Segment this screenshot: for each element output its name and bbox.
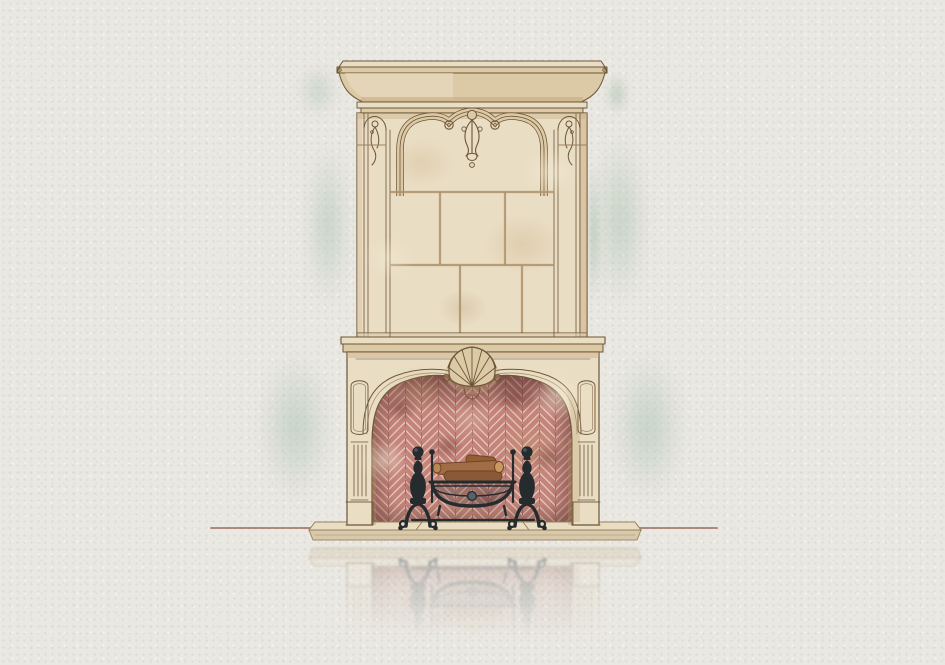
firewood-logs [433, 454, 504, 481]
fireplace-rendering [0, 0, 945, 665]
watercolor-scene [0, 0, 945, 665]
overmantel-trumeau [352, 108, 592, 342]
left-andiron [398, 446, 438, 530]
right-andiron [507, 446, 547, 530]
andirons-and-grate [388, 440, 558, 534]
